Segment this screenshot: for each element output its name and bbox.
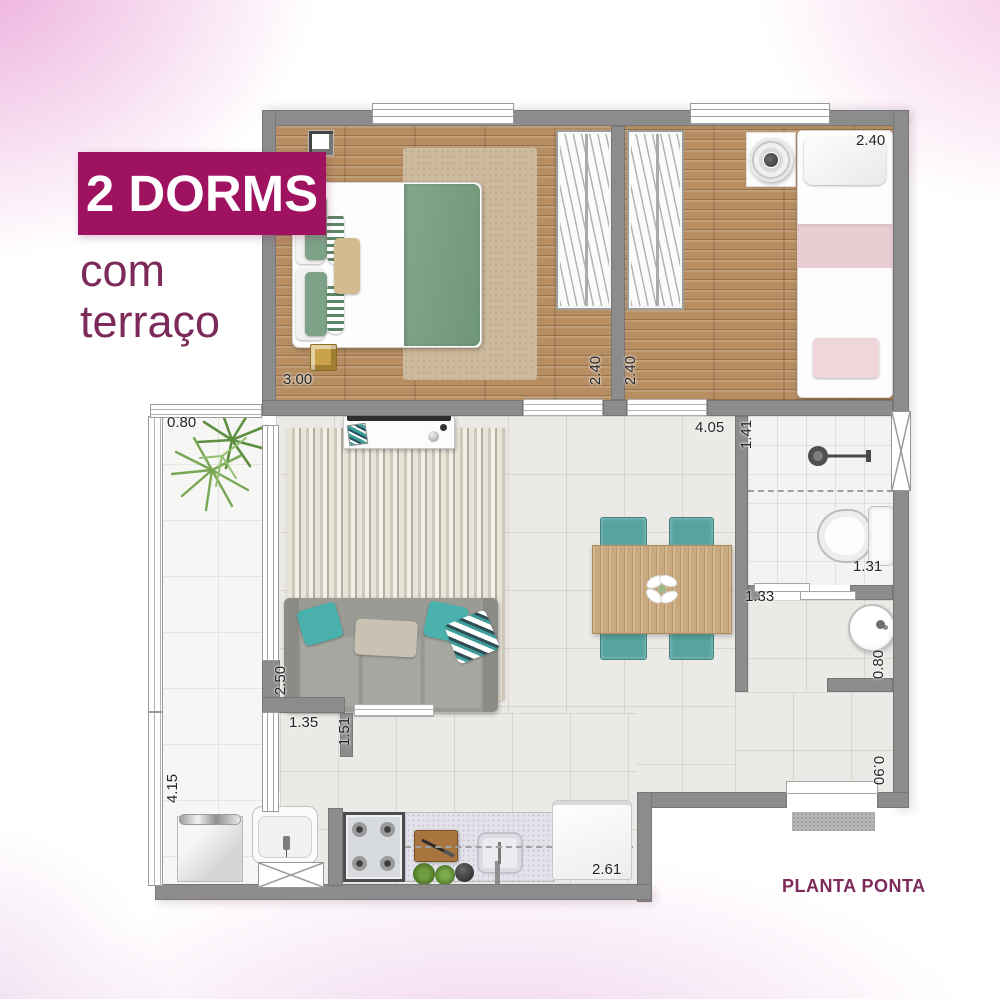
bedroom1-door — [523, 399, 603, 416]
table-flower-icon — [640, 568, 684, 612]
shower-glass-partition — [748, 490, 893, 492]
wall-corridor-bottom-b — [877, 792, 909, 808]
dim-bedroom1-width: 3.00 — [283, 371, 312, 388]
title-subtitle: com terraço — [80, 246, 220, 348]
wall-bedrooms-bottom-c — [707, 400, 893, 416]
terrace-railing-lower — [148, 712, 163, 886]
kitchen-service-door — [354, 704, 434, 717]
sideboard-knob — [440, 424, 447, 431]
dim-wall-segment: 1.35 — [289, 714, 318, 731]
wall-kitchen-bottom — [155, 884, 652, 900]
plan-name-label: PLANTA PONTA — [782, 876, 926, 897]
bathroom-window — [891, 411, 911, 491]
washer-top-panel — [179, 814, 241, 825]
hall-sink-faucet — [876, 620, 885, 629]
stove-burner-1 — [352, 822, 367, 837]
dim-hall-width: 1.33 — [745, 588, 774, 605]
fruit-bowl-icon — [455, 863, 474, 882]
entry-doormat — [790, 810, 877, 833]
bathroom-sliding-door-panel-2 — [800, 591, 856, 600]
sideboard-sphere-decor — [428, 431, 439, 442]
wall-living-bath-divider — [735, 416, 748, 692]
shower-icon — [806, 444, 876, 468]
kitchen-window — [258, 862, 324, 888]
dim-bedroom2-width: 2.40 — [856, 132, 885, 149]
toilet-cistern — [868, 506, 894, 566]
single-bed-blanket-pink — [797, 224, 893, 268]
dining-chair-1 — [600, 517, 647, 547]
wall-bedrooms-bottom-a — [262, 400, 523, 416]
dining-chair-4 — [669, 632, 714, 660]
hall-sink-basin — [848, 604, 896, 652]
bedroom2-window — [690, 103, 830, 125]
bed-pillow-beige — [334, 238, 360, 294]
dim-hall-sink: 0.80 — [870, 650, 887, 679]
wall-corridor-bottom-a — [650, 792, 787, 808]
bed-pillow-green-bottom — [305, 272, 327, 336]
double-bed-duvet — [404, 184, 480, 346]
bedroom1-wardrobe — [556, 130, 613, 310]
wall-living-corner-horizontal — [262, 697, 345, 713]
terrace-glass-door-lower — [262, 712, 279, 812]
dim-bath-width: 1.41 — [738, 420, 755, 449]
wall-bedrooms-bottom-b — [603, 400, 627, 416]
nightstand-radio — [310, 344, 337, 371]
dim-living-wall: 2.50 — [272, 666, 289, 695]
terrace-railing-upper — [148, 416, 163, 712]
washing-machine-icon — [177, 816, 243, 882]
single-bed-pink-pillow — [813, 338, 879, 378]
sideboard-decor-box — [347, 423, 369, 446]
dining-chair-2 — [669, 517, 714, 547]
bedroom1-window — [372, 103, 514, 125]
dim-kitchen-run: 2.61 — [592, 861, 621, 878]
dim-terrace-width: 0.80 — [167, 414, 196, 431]
tub-faucet — [283, 836, 290, 850]
wall-stub-service — [328, 808, 343, 886]
title-banner-text: 2 DORMS — [86, 164, 318, 223]
dim-terrace-length: 4.15 — [164, 774, 181, 803]
toilet-bowl — [817, 509, 873, 563]
entry-door-leaf — [786, 781, 878, 794]
subtitle-line2: terraço — [80, 297, 220, 348]
floor-plan: 0.80 3.00 2.40 2.40 2.40 4.05 1.41 1.31 … — [0, 0, 1000, 999]
sofa-pillow-beige — [354, 618, 418, 657]
title-banner: 2 DORMS — [78, 152, 326, 235]
dim-bedroom1-depth: 2.40 — [587, 356, 604, 385]
stove-burner-4 — [380, 856, 395, 871]
herb-plant-2 — [435, 865, 455, 885]
stove-icon — [343, 812, 405, 882]
dim-entry-width: 0.90 — [870, 756, 887, 785]
wardrobe-clothes-icon — [631, 134, 680, 306]
side-table-center — [764, 153, 778, 167]
stove-burner-3 — [352, 856, 367, 871]
herb-plant-1 — [413, 863, 435, 885]
wall-hall-stub — [827, 678, 893, 692]
wardrobe-clothes-icon — [560, 134, 609, 306]
subtitle-line1: com — [80, 246, 220, 297]
stove-burner-2 — [380, 822, 395, 837]
dim-bedroom2-depth: 2.40 — [622, 356, 639, 385]
dim-opening: 1.51 — [336, 717, 353, 746]
bedroom2-wardrobe — [627, 130, 684, 310]
bedroom2-door — [627, 399, 707, 416]
dining-chair-3 — [600, 632, 647, 660]
wall-bath-hall-right — [850, 585, 893, 600]
dim-living-width: 4.05 — [695, 419, 724, 436]
dim-bath-length: 1.31 — [853, 558, 882, 575]
terrace-glass-door-upper — [262, 425, 279, 661]
